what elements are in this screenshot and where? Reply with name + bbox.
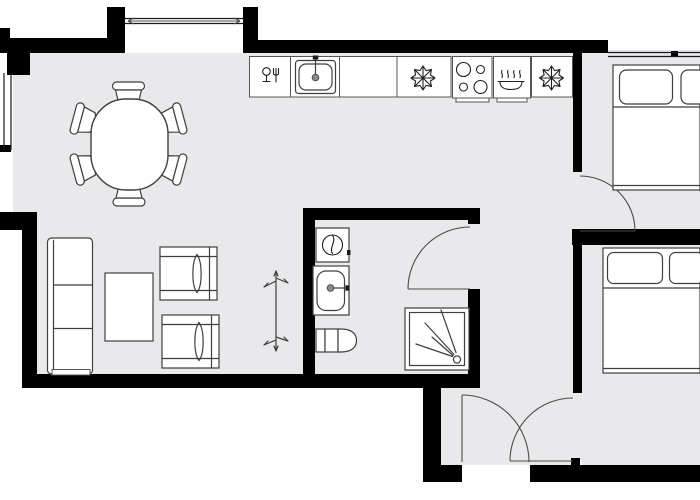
- armchair-2: [162, 315, 219, 368]
- dining-table: [91, 99, 168, 190]
- wall-hall-stub: [423, 382, 441, 470]
- wall-pillar-right: [243, 7, 258, 53]
- armchair-1: [160, 247, 217, 300]
- bed-bedroom1-pillow: [681, 70, 700, 104]
- dining-chair: [113, 198, 145, 206]
- floor-doorway-bedroom1: [573, 172, 582, 231]
- toilet-tank: [316, 329, 325, 352]
- kitchen-sink-faucet-base: [313, 56, 319, 60]
- window-left-sill: [0, 145, 11, 152]
- sofa-base-bar: [52, 370, 90, 376]
- washing-machine-valve: [347, 250, 351, 255]
- bed-bedroom1-pillow: [620, 70, 673, 104]
- toilet-bowl: [338, 329, 357, 352]
- wall-left-mid-band: [0, 212, 37, 230]
- washbasin-faucet-base: [346, 285, 350, 290]
- wall-left-upper-jog: [7, 53, 30, 75]
- counter-cell-dishwasher: [250, 57, 291, 98]
- wall-pillar-left: [107, 7, 125, 53]
- shower-head-icon: [453, 356, 460, 363]
- wall-top-main: [258, 40, 608, 53]
- bed-bedroom2-pillow: [608, 253, 663, 284]
- counter-cell-worktop: [340, 57, 398, 98]
- wall-kitchen-bedroom: [573, 53, 582, 172]
- toilet-seat: [325, 329, 338, 352]
- floor-hallway: [441, 386, 573, 465]
- counter-cell-oven: [494, 57, 531, 99]
- floor-doorway-bedroom2: [573, 393, 582, 461]
- floor-doorway-bathroom: [468, 224, 480, 289]
- counter-cell-stove: [453, 57, 493, 99]
- wall-top-left: [0, 38, 123, 53]
- freezer-snowflake-icon: [411, 66, 435, 90]
- wall-left-lower: [22, 230, 37, 378]
- wall-bottom-living: [22, 374, 480, 388]
- dining-chair: [113, 82, 145, 90]
- floor-corridor: [480, 208, 573, 388]
- wall-bath-right-upper: [468, 208, 480, 224]
- fridge-snowflake-icon: [540, 66, 564, 90]
- stove-front-lip: [456, 98, 489, 102]
- floor-plan-svg: [0, 0, 700, 500]
- floor-plan: [0, 0, 700, 500]
- oven-front-lip: [497, 98, 527, 102]
- washbasin-drain-dot: [327, 285, 334, 292]
- bed-bedroom2-pillow: [670, 253, 700, 284]
- kitchen-sink-drain-dot: [312, 74, 319, 81]
- wall-bedroom2-left: [573, 245, 582, 393]
- sofa: [48, 238, 93, 374]
- wall-bottom-entry-left: [423, 465, 462, 482]
- wall-bottom-entry-right: [530, 465, 700, 482]
- coffee-table: [105, 273, 153, 341]
- wall-bath-top: [303, 208, 480, 220]
- wall-bath-right-lower: [468, 289, 480, 382]
